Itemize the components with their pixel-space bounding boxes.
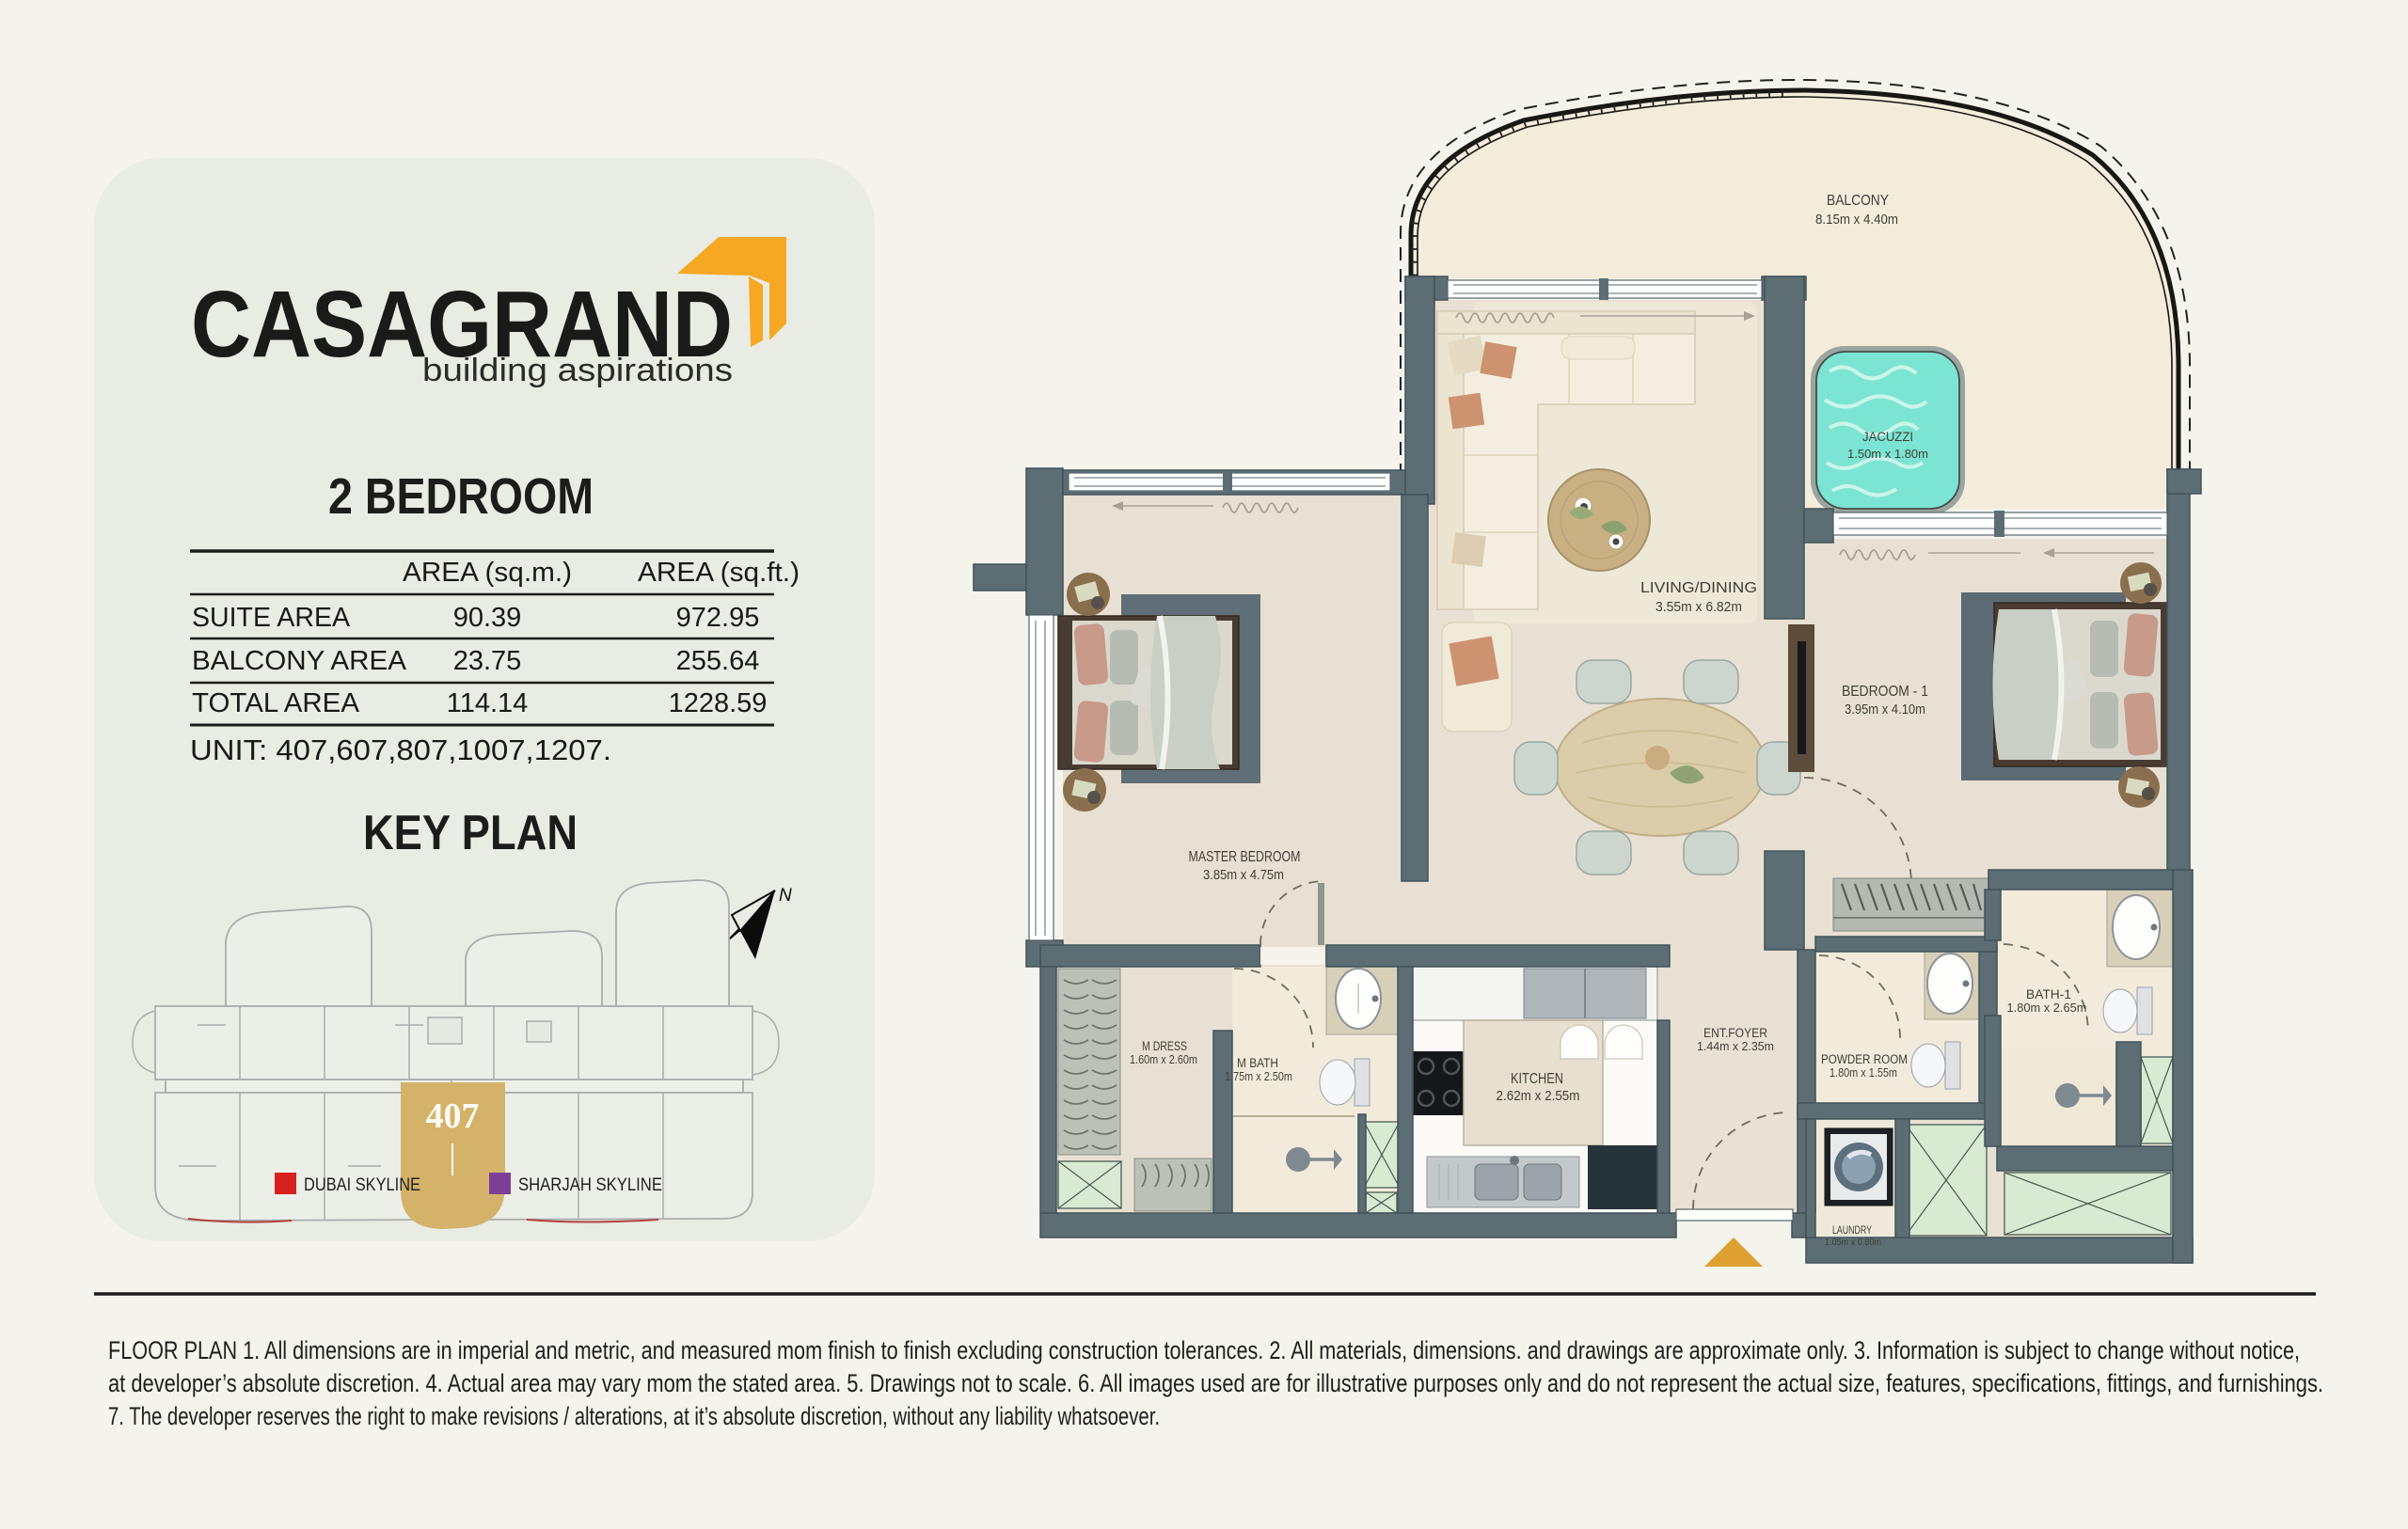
svg-text:MASTER BEDROOM: MASTER BEDROOM (1189, 849, 1301, 865)
svg-text:407: 407 (426, 1096, 480, 1136)
svg-text:POWDER ROOM: POWDER ROOM (1821, 1052, 1908, 1066)
svg-text:1228.59: 1228.59 (669, 688, 768, 718)
svg-text:N: N (779, 886, 792, 906)
svg-text:AREA (sq.ft.): AREA (sq.ft.) (638, 558, 800, 588)
svg-text:JACUZZI: JACUZZI (1862, 430, 1913, 444)
svg-text:BATH-1: BATH-1 (2026, 987, 2071, 1001)
svg-text:2.62m x 2.55m: 2.62m x 2.55m (1497, 1089, 1580, 1104)
svg-text:TOTAL AREA: TOTAL AREA (192, 688, 360, 718)
svg-text:255.64: 255.64 (676, 646, 760, 676)
svg-text:BEDROOM - 1: BEDROOM - 1 (1842, 684, 1928, 700)
svg-text:972.95: 972.95 (676, 603, 760, 633)
svg-text:1.50m x 1.80m: 1.50m x 1.80m (1847, 447, 1928, 461)
svg-text:23.75: 23.75 (453, 646, 522, 676)
svg-text:AREA (sq.m.): AREA (sq.m.) (403, 558, 572, 588)
svg-text:SUITE AREA: SUITE AREA (192, 603, 351, 633)
svg-text:1.75m x 2.50m: 1.75m x 2.50m (1225, 1069, 1292, 1083)
svg-text:3.95m x 4.10m: 3.95m x 4.10m (1845, 702, 1925, 717)
svg-text:FLOOR PLAN 1. All dimensions a: FLOOR PLAN 1. All dimensions are in impe… (108, 1336, 2300, 1364)
svg-text:UNIT: 407,607,807,1007,1207.: UNIT: 407,607,807,1007,1207. (190, 734, 611, 766)
svg-text:8.15m x 4.40m: 8.15m x 4.40m (1815, 213, 1898, 228)
svg-text:M DRESS: M DRESS (1142, 1039, 1187, 1053)
svg-text:building aspirations: building aspirations (422, 353, 733, 388)
svg-text:LAUNDRY: LAUNDRY (1832, 1225, 1872, 1237)
svg-text:at developer’s absolute discre: at developer’s absolute discretion. 4. A… (108, 1369, 2323, 1397)
svg-text:BALCONY AREA: BALCONY AREA (192, 646, 407, 676)
svg-text:KEY PLAN: KEY PLAN (363, 806, 578, 860)
svg-text:1.80m x 2.65m: 1.80m x 2.65m (2007, 1001, 2087, 1015)
svg-text:3.55m x 6.82m: 3.55m x 6.82m (1655, 600, 1742, 615)
svg-text:7. The developer reserves the: 7. The developer reserves the right to m… (108, 1402, 1160, 1430)
svg-text:ENT.FOYER: ENT.FOYER (1703, 1026, 1767, 1040)
svg-text:KITCHEN: KITCHEN (1511, 1071, 1563, 1087)
svg-text:1.60m x 2.60m: 1.60m x 2.60m (1130, 1052, 1197, 1066)
svg-text:114.14: 114.14 (447, 688, 529, 718)
svg-text:90.39: 90.39 (453, 603, 522, 633)
svg-text:2 BEDROOM: 2 BEDROOM (328, 468, 594, 525)
svg-text:3.85m x 4.75m: 3.85m x 4.75m (1203, 868, 1284, 883)
svg-text:1.80m x 1.55m: 1.80m x 1.55m (1830, 1065, 1897, 1080)
svg-text:M BATH: M BATH (1237, 1056, 1278, 1070)
svg-text:LIVING/DINING: LIVING/DINING (1640, 580, 1757, 596)
svg-text:DUBAI SKYLINE: DUBAI SKYLINE (304, 1175, 420, 1195)
svg-text:1.44m x 2.35m: 1.44m x 2.35m (1697, 1039, 1774, 1053)
svg-text:SHARJAH SKYLINE: SHARJAH SKYLINE (518, 1175, 662, 1195)
svg-text:BALCONY: BALCONY (1827, 193, 1889, 209)
svg-text:1.05m x 0.80m: 1.05m x 0.80m (1825, 1237, 1881, 1248)
